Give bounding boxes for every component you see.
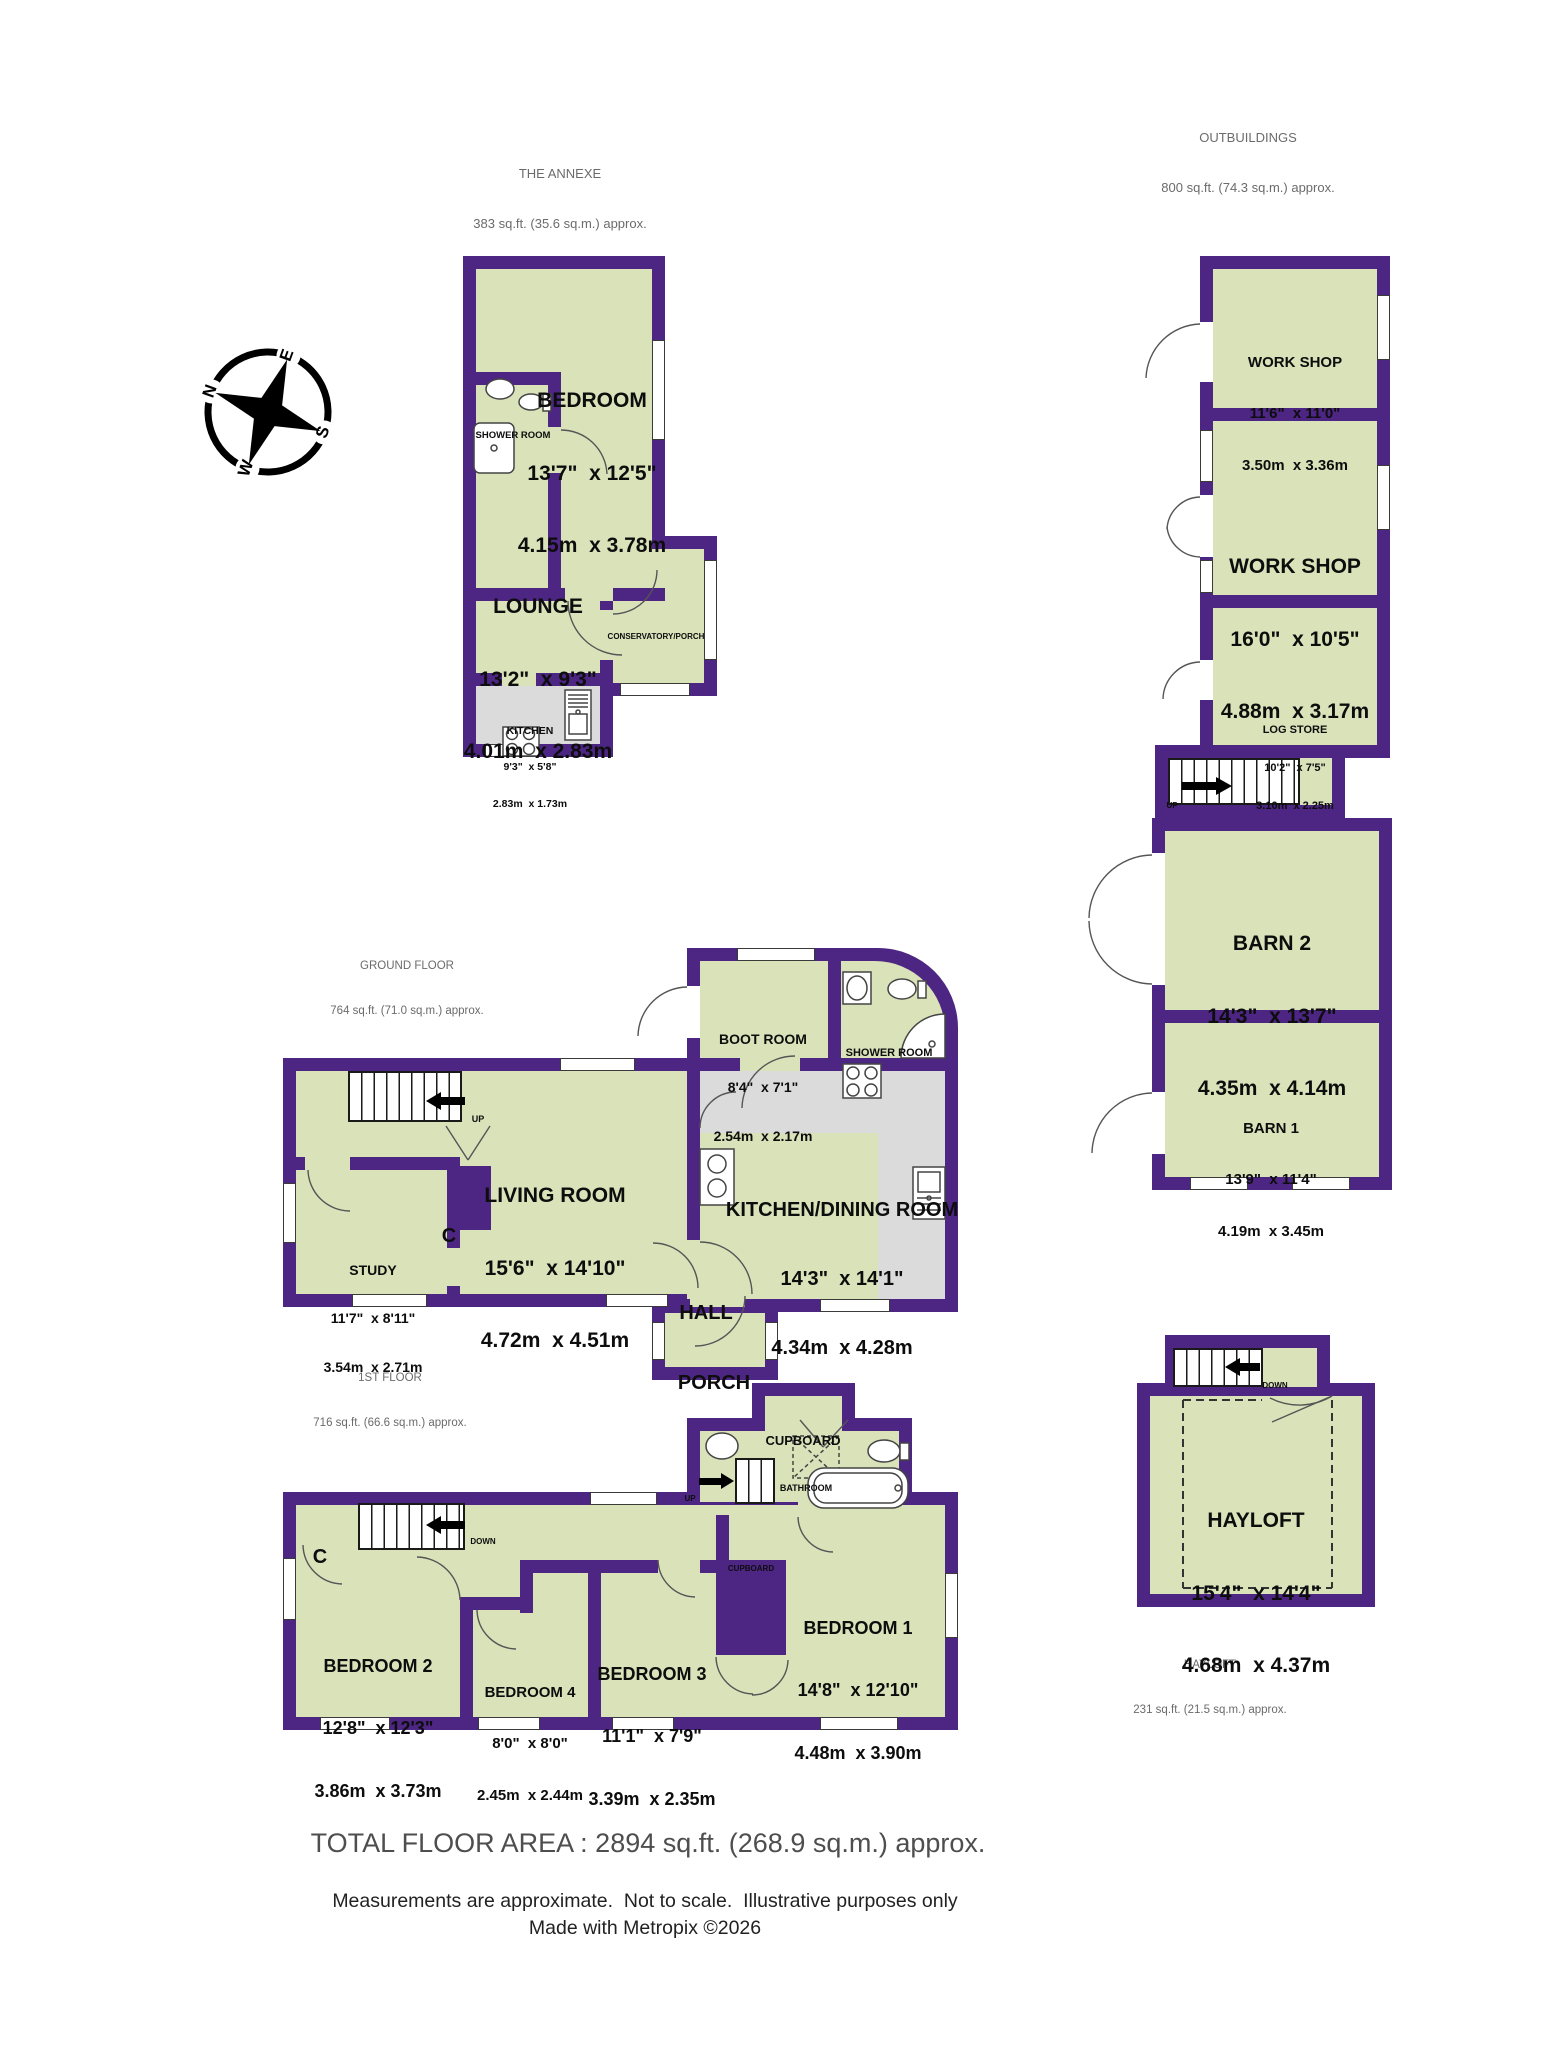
label-ff-cupboard-c: C <box>309 1500 331 1615</box>
cupboard-letter: C <box>438 1225 460 1248</box>
room-size-imperial: 12'8" x 12'3" <box>314 1718 441 1739</box>
room-size-metric: 3.50m x 3.36m <box>1242 457 1348 474</box>
room-size-metric: 3.10m x 2.25m <box>1256 800 1334 813</box>
window <box>590 1492 657 1505</box>
room-name: CONSERVATORY/PORCH <box>608 632 705 641</box>
label-gf-cupboard-c: C <box>438 1179 460 1294</box>
room-name: LOG STORE <box>1256 724 1334 737</box>
credit-text: Made with Metropix ©2026 <box>529 1917 761 1940</box>
label-cupboard-mid: CUPBOARD <box>728 1546 774 1592</box>
compass-s: S <box>310 418 341 449</box>
room-size-imperial: 11'6" x 11'0" <box>1242 405 1348 422</box>
floorplan: THE ANNEXE 383 sq.ft. (35.6 sq.m.) appro… <box>0 0 1554 2048</box>
stairs-direction: UP <box>684 1494 695 1503</box>
label-gf-stairs-up: UP <box>472 1093 485 1145</box>
label-study: STUDY 11'7" x 8'11" 3.54m x 2.71m <box>324 1230 423 1407</box>
room-size-imperial: 13'2" x 9'3" <box>464 668 612 692</box>
wall <box>700 1560 716 1573</box>
room-size-imperial: 15'6" x 14'10" <box>481 1257 629 1281</box>
wall <box>588 1560 658 1573</box>
door-opening <box>1200 495 1213 557</box>
room-name: PORCH <box>678 1372 750 1395</box>
room-size-imperial: 14'8" x 12'10" <box>794 1680 921 1701</box>
room-size-imperial: 13'9" x 11'4" <box>1218 1171 1324 1188</box>
label-hay-stairs-down: DOWN <box>1262 1363 1287 1409</box>
room-name: SHOWER ROOM <box>846 1047 933 1060</box>
door-opening <box>1152 853 1165 985</box>
room-name: BATHROOM <box>780 1483 832 1493</box>
label-bedroom1: BEDROOM 1 14'8" x 12'10" 4.48m x 3.90m <box>794 1577 921 1805</box>
label-wing-stairs-up: UP <box>684 1476 695 1522</box>
window <box>620 683 690 696</box>
room-size-metric: 4.34m x 4.28m <box>726 1337 958 1360</box>
window <box>560 1058 635 1071</box>
label-annexe-kitchen: KITCHEN 9'3" x 5'8" 2.83m x 1.73m <box>493 701 567 834</box>
wall <box>460 1597 522 1610</box>
stairs-direction: UP <box>472 1114 485 1124</box>
label-annexe-shower: SHOWER ROOM <box>476 409 551 464</box>
room-name: LIVING ROOM <box>481 1184 629 1208</box>
label-workshop1: WORK SHOP 11'6" x 11'0" 3.50m x 3.36m <box>1242 319 1348 509</box>
label-conservatory: CONSERVATORY/PORCH <box>608 614 705 660</box>
section-area: 800 sq.ft. (74.3 sq.m.) approx. <box>1161 180 1334 197</box>
room-name: WORK SHOP <box>1221 555 1369 579</box>
compass-n: N <box>197 377 228 408</box>
room-size-metric: 3.54m x 2.71m <box>324 1359 423 1375</box>
window <box>704 560 717 660</box>
stairs <box>1173 1348 1263 1387</box>
room-name: SHOWER ROOM <box>476 431 551 442</box>
room-name: BEDROOM 1 <box>794 1618 921 1639</box>
room-size-metric: 3.39m x 2.35m <box>588 1789 715 1810</box>
room-name: CUPBOARD <box>765 1434 840 1449</box>
door-opening <box>1152 1092 1165 1154</box>
room-size-metric: 4.19m x 3.45m <box>1218 1223 1324 1240</box>
label-hayloft: HAYLOFT 15'4" x 14'4" 4.68m x 4.37m <box>1182 1461 1330 1727</box>
room-name: LOUNGE <box>464 595 612 619</box>
room-name: HAYLOFT <box>1182 1509 1330 1533</box>
window <box>1377 295 1390 360</box>
window <box>1377 465 1390 530</box>
label-bedroom3: BEDROOM 3 11'1" x 7'9" 3.39m x 2.35m <box>588 1623 715 1851</box>
outbuildings-title: OUTBUILDINGS 800 sq.ft. (74.3 sq.m.) app… <box>1161 96 1334 231</box>
stairs-direction: DOWN <box>1262 1381 1287 1390</box>
room-size-imperial: 8'0" x 8'0" <box>477 1735 583 1752</box>
window <box>283 1183 296 1243</box>
compass-w: W <box>233 454 264 485</box>
room-name: WORK SHOP <box>1242 354 1348 371</box>
stairs <box>358 1503 465 1550</box>
ground-floor-title: GROUND FLOOR 764 sq.ft. (71.0 sq.m.) app… <box>330 929 483 1049</box>
label-barn1: BARN 1 13'9" x 11'4" 4.19m x 3.45m <box>1218 1085 1324 1275</box>
label-log-store: LOG STORE 10'2" x 7'5" 3.10m x 2.25m <box>1256 699 1334 838</box>
door-opening <box>1200 322 1213 382</box>
room-size-metric: 4.72m x 4.51m <box>481 1329 629 1353</box>
total-floor-area: TOTAL FLOOR AREA : 2894 sq.ft. (268.9 sq… <box>311 1828 986 1859</box>
compass-icon <box>176 320 361 505</box>
room-name: HALL <box>679 1302 732 1325</box>
compass-e: E <box>274 341 305 372</box>
window <box>652 1322 665 1360</box>
room-name: KITCHEN/DINING ROOM <box>726 1199 958 1222</box>
window <box>945 1573 958 1638</box>
room-size-imperial: 8'4" x 7'1" <box>714 1079 813 1095</box>
room-size-imperial: 9'3" x 5'8" <box>493 761 567 773</box>
section-title: OUTBUILDINGS <box>1161 130 1334 147</box>
label-porch: PORCH <box>678 1326 750 1441</box>
stairs-direction: UP <box>1166 801 1177 810</box>
room-size-metric: 2.83m x 1.73m <box>493 798 567 810</box>
room-name: STUDY <box>324 1262 423 1278</box>
label-boot-room: BOOT ROOM 8'4" x 7'1" 2.54m x 2.17m <box>714 999 813 1176</box>
room-name: BARN 2 <box>1198 932 1346 956</box>
label-ff-stairs-down: DOWN <box>470 1519 495 1565</box>
wall <box>460 1600 473 1717</box>
stairs <box>348 1071 462 1122</box>
section-title: THE ANNEXE <box>473 166 646 183</box>
label-living-room: LIVING ROOM 15'6" x 14'10" 4.72m x 4.51m <box>481 1136 629 1402</box>
room-name: BEDROOM 4 <box>477 1684 583 1701</box>
wall <box>533 1560 595 1573</box>
annexe-title: THE ANNEXE 383 sq.ft. (35.6 sq.m.) appro… <box>473 132 646 267</box>
room-size-imperial: 15'4" x 14'4" <box>1182 1582 1330 1606</box>
room-size-imperial: 11'7" x 8'11" <box>324 1310 423 1326</box>
stairs-direction: DOWN <box>470 1537 495 1546</box>
section-area: 716 sq.ft. (66.6 sq.m.) approx. <box>313 1416 466 1431</box>
door-opening <box>1200 660 1213 700</box>
room-size-metric: 4.48m x 3.90m <box>794 1743 921 1764</box>
door-opening <box>305 1157 350 1170</box>
window <box>1200 430 1213 482</box>
label-kitchen-dining: KITCHEN/DINING ROOM 14'3" x 14'1" 4.34m … <box>726 1153 958 1406</box>
label-bedroom2: BEDROOM 2 12'8" x 12'3" 3.86m x 3.73m <box>314 1615 441 1843</box>
room-size-metric: 2.45m x 2.44m <box>477 1787 583 1804</box>
cupboard-letter: C <box>309 1546 331 1569</box>
room-size-imperial: 13'7" x 12'5" <box>518 462 666 486</box>
room-name: KITCHEN <box>493 725 567 737</box>
window <box>283 1558 296 1620</box>
window <box>1200 560 1213 593</box>
section-area: 764 sq.ft. (71.0 sq.m.) approx. <box>330 1004 483 1019</box>
room-name: CUPBOARD <box>728 1564 774 1573</box>
section-title: GROUND FLOOR <box>330 959 483 974</box>
room-size-imperial: 14'3" x 14'1" <box>726 1268 958 1291</box>
room-name: BEDROOM 2 <box>314 1656 441 1677</box>
room-size-imperial: 11'1" x 7'9" <box>588 1726 715 1747</box>
room-size-metric: 2.54m x 2.17m <box>714 1128 813 1144</box>
room-size-metric: 3.86m x 3.73m <box>314 1781 441 1802</box>
door-opening <box>687 986 700 1038</box>
label-bedroom4: BEDROOM 4 8'0" x 8'0" 2.45m x 2.44m <box>477 1649 583 1839</box>
label-gf-shower: SHOWER ROOM <box>846 1022 933 1085</box>
room-size-imperial: 16'0" x 10'5" <box>1221 628 1369 652</box>
disclaimer-text: Measurements are approximate. Not to sca… <box>332 1890 957 1913</box>
room-name: BOOT ROOM <box>714 1031 813 1047</box>
room-name: BARN 1 <box>1218 1120 1324 1137</box>
wall <box>828 961 841 1058</box>
room-size-metric: 4.68m x 4.37m <box>1182 1654 1330 1678</box>
room-size-imperial: 10'2" x 7'5" <box>1256 762 1334 775</box>
room-size-imperial: 14'3" x 13'7" <box>1198 1005 1346 1029</box>
section-area: 383 sq.ft. (35.6 sq.m.) approx. <box>473 216 646 233</box>
label-cupboard-top: CUPBOARD <box>765 1404 840 1479</box>
label-ob-stairs-up: UP <box>1166 783 1177 829</box>
room-name: BEDROOM 3 <box>588 1664 715 1685</box>
window <box>737 948 815 961</box>
